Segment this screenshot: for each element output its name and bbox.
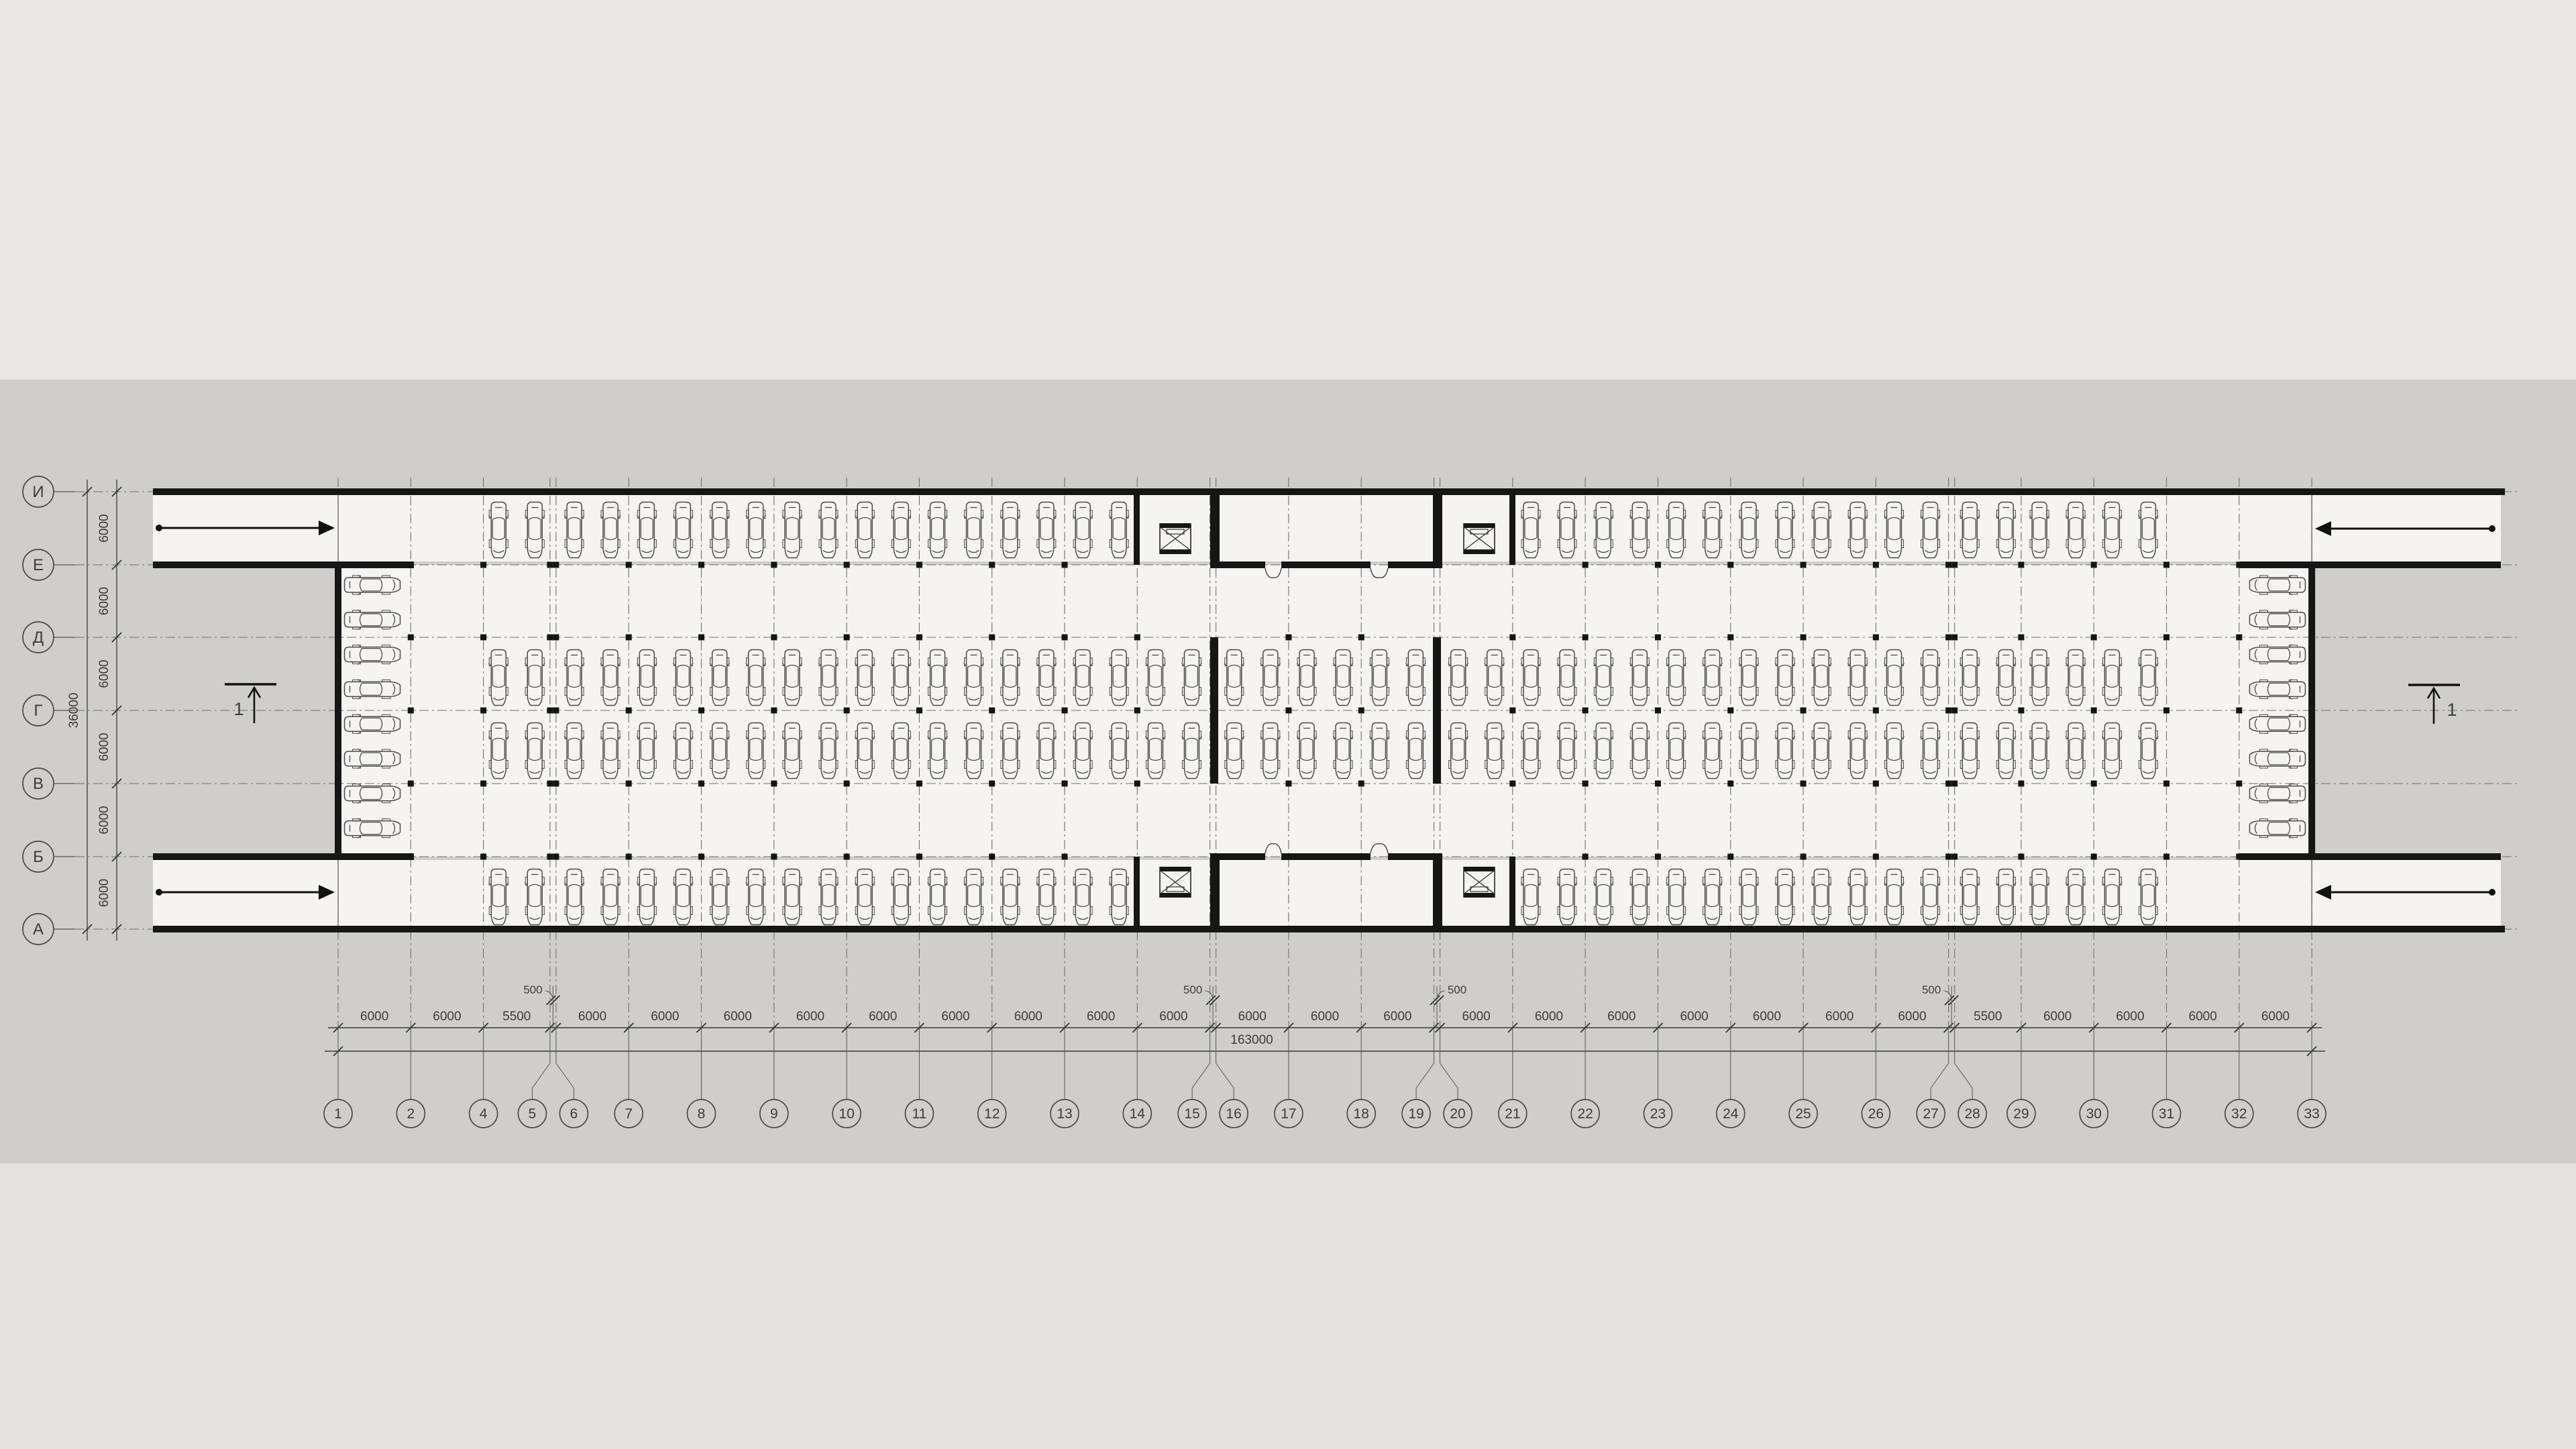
grid-bubble-column-label: 28 bbox=[1964, 1106, 1980, 1122]
column-square bbox=[916, 562, 922, 568]
row-dimension-label: 6000 bbox=[97, 879, 111, 907]
elevator-shaft-icon-bar bbox=[1160, 893, 1191, 898]
column-square bbox=[771, 635, 777, 641]
dimension-label: 6000 bbox=[433, 1010, 461, 1024]
column-square bbox=[1873, 635, 1879, 641]
dimension-label: 5500 bbox=[1974, 1010, 2002, 1024]
grid-bubble-column-label: 33 bbox=[2304, 1106, 2319, 1122]
grid-bubble-column-label: 29 bbox=[2013, 1106, 2029, 1122]
column-square bbox=[916, 781, 922, 787]
column-square bbox=[1134, 781, 1140, 787]
column-square bbox=[626, 562, 632, 568]
column-square bbox=[1801, 562, 1807, 568]
column-square bbox=[1801, 635, 1807, 641]
grid-bubble-column-label: 22 bbox=[1577, 1106, 1593, 1122]
column-square bbox=[1134, 708, 1140, 714]
dimension-label: 6000 bbox=[1238, 1010, 1267, 1024]
column-square bbox=[480, 781, 486, 787]
wall-row-E-east bbox=[2239, 561, 2501, 568]
dimension-label: 6000 bbox=[941, 1010, 969, 1024]
dimension-label: 6000 bbox=[651, 1010, 679, 1024]
grid-bubble-column-label: 26 bbox=[1868, 1106, 1884, 1122]
wall-row-E-west bbox=[153, 561, 414, 568]
dimension-label: 6000 bbox=[2189, 1010, 2217, 1024]
wall-grid33 bbox=[2308, 565, 2315, 857]
column-square bbox=[771, 781, 777, 787]
grid-bubble-row-label: А bbox=[33, 920, 44, 938]
column-square bbox=[553, 781, 559, 787]
column-square bbox=[2018, 635, 2024, 641]
column-square bbox=[1945, 854, 1951, 860]
column-square bbox=[1655, 635, 1661, 641]
column-square bbox=[408, 781, 414, 787]
column-square bbox=[1801, 854, 1807, 860]
column-square bbox=[1951, 635, 1957, 641]
grid-bubble-column-label: 19 bbox=[1408, 1106, 1424, 1122]
ramp-arrow-dot bbox=[156, 889, 162, 896]
column-square bbox=[1358, 708, 1364, 714]
column-square bbox=[547, 781, 553, 787]
grid-bubble-row-label: И bbox=[32, 483, 44, 501]
grid-bubble-column-label: 1 bbox=[334, 1106, 342, 1122]
column-square bbox=[1655, 781, 1661, 787]
dimension-label: 6000 bbox=[1753, 1010, 1781, 1024]
column-square bbox=[1582, 635, 1589, 641]
wall-grid21-south bbox=[1509, 857, 1515, 929]
column-square bbox=[1285, 781, 1291, 787]
band-bottom bbox=[0, 1163, 2576, 1449]
column-square bbox=[1655, 562, 1661, 568]
dimension-label: 6000 bbox=[1607, 1010, 1635, 1024]
column-square bbox=[698, 635, 704, 641]
dimension-label: 6000 bbox=[869, 1010, 897, 1024]
gap-dimension-label: 500 bbox=[1448, 983, 1466, 996]
column-square bbox=[844, 708, 850, 714]
grid-bubble-row-label: В bbox=[33, 775, 44, 793]
column-square bbox=[2236, 781, 2242, 787]
column-square bbox=[480, 708, 486, 714]
dimension-label: 6000 bbox=[1311, 1010, 1339, 1024]
grid-bubble-column-label: 5 bbox=[529, 1106, 537, 1122]
column-square bbox=[1358, 781, 1364, 787]
grid-bubble-column-label: 31 bbox=[2159, 1106, 2174, 1122]
wall-grid21-north bbox=[1509, 492, 1515, 565]
column-square bbox=[1582, 562, 1589, 568]
column-square bbox=[989, 708, 995, 714]
dimension-label: 6000 bbox=[724, 1010, 752, 1024]
column-square bbox=[1727, 708, 1733, 714]
column-square bbox=[553, 854, 559, 860]
column-square bbox=[1655, 854, 1661, 860]
grid-bubble-row-label: Е bbox=[33, 556, 44, 574]
grid-bubble-column-label: 30 bbox=[2086, 1106, 2102, 1122]
gap-dimension-label: 500 bbox=[1922, 983, 1941, 996]
column-square bbox=[1945, 635, 1951, 641]
wall-row-A bbox=[153, 926, 2505, 932]
grid-bubble-column-label: 2 bbox=[407, 1106, 415, 1122]
column-square bbox=[1727, 781, 1733, 787]
wall-core-north-3 bbox=[1388, 561, 1437, 568]
wall-row-I bbox=[153, 488, 2505, 495]
column-square bbox=[1951, 562, 1957, 568]
grid-bubble-column-label: 10 bbox=[839, 1106, 854, 1122]
column-square bbox=[480, 854, 486, 860]
column-square bbox=[2236, 635, 2242, 641]
row-dimension-label: 6000 bbox=[97, 587, 111, 615]
column-square bbox=[408, 635, 414, 641]
ramp-arrow-dot bbox=[156, 525, 162, 531]
column-square bbox=[547, 708, 553, 714]
column-square bbox=[698, 781, 704, 787]
section-mark-label: 1 bbox=[2447, 700, 2457, 720]
column-square bbox=[916, 708, 922, 714]
column-square bbox=[1062, 562, 1068, 568]
grid-bubble-column-label: 14 bbox=[1130, 1106, 1146, 1122]
wall-core-mid-west bbox=[1210, 637, 1218, 784]
grid-bubble-column-label: 9 bbox=[770, 1106, 778, 1122]
dimension-label: 6000 bbox=[1462, 1010, 1491, 1024]
column-square bbox=[1951, 781, 1957, 787]
column-square bbox=[2163, 562, 2169, 568]
ramp-arrow-dot bbox=[2489, 525, 2495, 532]
column-square bbox=[916, 635, 922, 641]
wall-coreroom-se bbox=[1433, 853, 1442, 929]
column-square bbox=[1134, 635, 1140, 641]
column-square bbox=[1873, 708, 1879, 714]
column-square bbox=[1285, 635, 1291, 641]
dimension-label: 6000 bbox=[796, 1010, 824, 1024]
wall-core-south-2 bbox=[1281, 853, 1371, 860]
column-square bbox=[553, 635, 559, 641]
column-square bbox=[1945, 708, 1951, 714]
column-square bbox=[2163, 781, 2169, 787]
column-square bbox=[771, 562, 777, 568]
dimension-label: 6000 bbox=[1014, 1010, 1042, 1024]
wall-coreroom-sw bbox=[1210, 853, 1220, 929]
column-square bbox=[1727, 854, 1733, 860]
column-square bbox=[2018, 781, 2024, 787]
column-square bbox=[1358, 635, 1364, 641]
column-square bbox=[2236, 708, 2242, 714]
column-square bbox=[553, 562, 559, 568]
dimension-label: 6000 bbox=[1898, 1010, 1926, 1024]
column-square bbox=[2018, 562, 2024, 568]
grid-bubble-row-label: Д bbox=[33, 629, 44, 647]
elevator-shaft-icon-bar bbox=[1464, 867, 1495, 871]
grid-bubble-column-label: 17 bbox=[1281, 1106, 1296, 1122]
column-square bbox=[626, 781, 632, 787]
column-square bbox=[553, 708, 559, 714]
column-square bbox=[1655, 708, 1661, 714]
wall-grid14-north bbox=[1134, 492, 1140, 565]
column-square bbox=[1801, 781, 1807, 787]
column-square bbox=[1945, 562, 1951, 568]
dimension-label: 6000 bbox=[1825, 1010, 1854, 1024]
column-square bbox=[698, 854, 704, 860]
grid-bubble-column-label: 8 bbox=[698, 1106, 706, 1122]
wall-row-B-west bbox=[153, 853, 414, 860]
dimension-label: 5500 bbox=[502, 1010, 531, 1024]
column-square bbox=[1582, 708, 1589, 714]
grid-bubble-column-label: 7 bbox=[625, 1106, 633, 1122]
column-square bbox=[480, 562, 486, 568]
column-square bbox=[698, 708, 704, 714]
dimension-label: 6000 bbox=[1383, 1010, 1411, 1024]
column-square bbox=[844, 562, 850, 568]
column-square bbox=[1873, 562, 1879, 568]
elevator-shaft-icon-bar bbox=[1160, 867, 1191, 871]
row-dimension-label: 6000 bbox=[97, 514, 111, 542]
column-square bbox=[2091, 781, 2097, 787]
wall-core-south-3 bbox=[1388, 853, 1437, 860]
column-square bbox=[2018, 854, 2024, 860]
gap-dimension-label: 500 bbox=[1183, 983, 1202, 996]
grid-bubble-column-label: 4 bbox=[480, 1106, 488, 1122]
column-square bbox=[1801, 708, 1807, 714]
column-square bbox=[771, 708, 777, 714]
column-square bbox=[2163, 708, 2169, 714]
grid-bubble-column-label: 32 bbox=[2231, 1106, 2247, 1122]
column-square bbox=[844, 635, 850, 641]
dimension-label: 6000 bbox=[360, 1010, 388, 1024]
column-square bbox=[1285, 708, 1291, 714]
column-square bbox=[1727, 635, 1733, 641]
column-square bbox=[1509, 708, 1515, 714]
grid-bubble-column-label: 6 bbox=[570, 1106, 578, 1122]
dimension-label: 6000 bbox=[1535, 1010, 1563, 1024]
column-square bbox=[989, 854, 995, 860]
dimension-label: 6000 bbox=[578, 1010, 606, 1024]
grid-bubble-row-label: Б bbox=[33, 848, 44, 866]
column-square bbox=[771, 854, 777, 860]
column-square bbox=[1062, 635, 1068, 641]
column-square bbox=[1582, 781, 1589, 787]
column-square bbox=[480, 635, 486, 641]
column-square bbox=[626, 854, 632, 860]
row-dimension-label: 6000 bbox=[97, 659, 111, 688]
column-square bbox=[844, 781, 850, 787]
column-square bbox=[1951, 708, 1957, 714]
grid-bubble-column-label: 12 bbox=[984, 1106, 1000, 1122]
elevator-shaft-icon-bar bbox=[1160, 549, 1191, 554]
grid-bubble-column-label: 18 bbox=[1354, 1106, 1369, 1122]
column-square bbox=[2163, 854, 2169, 860]
column-square bbox=[989, 562, 995, 568]
floor-plan: 1160006000550060006000600060006000600060… bbox=[0, 0, 2576, 1449]
wall-core-north-2 bbox=[1281, 561, 1371, 568]
dimension-label: 6000 bbox=[1087, 1010, 1115, 1024]
column-square bbox=[1062, 854, 1068, 860]
column-square bbox=[989, 635, 995, 641]
wall-core-mid-east bbox=[1433, 637, 1441, 784]
dimension-label: 6000 bbox=[2043, 1010, 2072, 1024]
column-square bbox=[2091, 635, 2097, 641]
column-square bbox=[1062, 708, 1068, 714]
elevator-shaft-icon-bar bbox=[1160, 523, 1191, 528]
grid-bubble-column-label: 21 bbox=[1505, 1106, 1520, 1122]
column-square bbox=[1582, 854, 1589, 860]
wall-coreroom-nw bbox=[1210, 492, 1220, 568]
column-square bbox=[2091, 854, 2097, 860]
elevator-shaft-icon-bar bbox=[1464, 523, 1495, 528]
grid-bubble-column-label: 27 bbox=[1923, 1106, 1938, 1122]
wall-row-B-east bbox=[2239, 853, 2501, 860]
column-square bbox=[2018, 708, 2024, 714]
wall-coreroom-ne bbox=[1433, 492, 1442, 568]
grid-bubble-column-label: 20 bbox=[1450, 1106, 1465, 1122]
grid-bubble-row-label: Г bbox=[34, 702, 43, 720]
column-square bbox=[408, 708, 414, 714]
column-square bbox=[1873, 781, 1879, 787]
column-square bbox=[989, 781, 995, 787]
grid-bubble-column-label: 23 bbox=[1650, 1106, 1666, 1122]
elevator-shaft-icon-bar bbox=[1464, 549, 1495, 554]
column-square bbox=[2091, 562, 2097, 568]
ramp-arrow-dot bbox=[2489, 889, 2495, 896]
column-square bbox=[547, 562, 553, 568]
column-square bbox=[1062, 781, 1068, 787]
column-square bbox=[1727, 562, 1733, 568]
overall-dimension-label: 163000 bbox=[1230, 1033, 1273, 1047]
column-square bbox=[1945, 781, 1951, 787]
row-dimension-label: 6000 bbox=[97, 733, 111, 761]
grid-bubble-column-label: 25 bbox=[1795, 1106, 1811, 1122]
column-square bbox=[2091, 708, 2097, 714]
wall-grid1 bbox=[335, 565, 341, 857]
dimension-label: 6000 bbox=[1680, 1010, 1708, 1024]
dimension-label: 6000 bbox=[1159, 1010, 1187, 1024]
column-square bbox=[844, 854, 850, 860]
column-square bbox=[1509, 781, 1515, 787]
grid-bubble-column-label: 16 bbox=[1226, 1106, 1241, 1122]
elevator-shaft-icon-bar bbox=[1464, 893, 1495, 898]
dimension-label: 6000 bbox=[2261, 1010, 2290, 1024]
grid-bubble-column-label: 13 bbox=[1057, 1106, 1072, 1122]
column-square bbox=[626, 708, 632, 714]
section-mark-label: 1 bbox=[233, 699, 244, 719]
gap-dimension-label: 500 bbox=[523, 983, 542, 996]
column-square bbox=[2163, 635, 2169, 641]
row-dimension-label: 6000 bbox=[97, 806, 111, 834]
grid-bubble-column-label: 11 bbox=[912, 1106, 926, 1122]
dimension-label: 6000 bbox=[2116, 1010, 2144, 1024]
drawing-sheet: План подземного паркинга на отм. -4,500 … bbox=[0, 0, 2576, 1449]
column-square bbox=[916, 854, 922, 860]
band-top bbox=[0, 0, 2576, 380]
column-square bbox=[1951, 854, 1957, 860]
column-square bbox=[547, 635, 553, 641]
grid-bubble-column-label: 15 bbox=[1184, 1106, 1199, 1122]
grid-bubble-column-label: 24 bbox=[1723, 1106, 1739, 1122]
column-square bbox=[1873, 854, 1879, 860]
column-square bbox=[1509, 635, 1515, 641]
wall-grid14-south bbox=[1134, 857, 1140, 929]
column-square bbox=[547, 854, 553, 860]
column-square bbox=[698, 562, 704, 568]
column-square bbox=[626, 635, 632, 641]
